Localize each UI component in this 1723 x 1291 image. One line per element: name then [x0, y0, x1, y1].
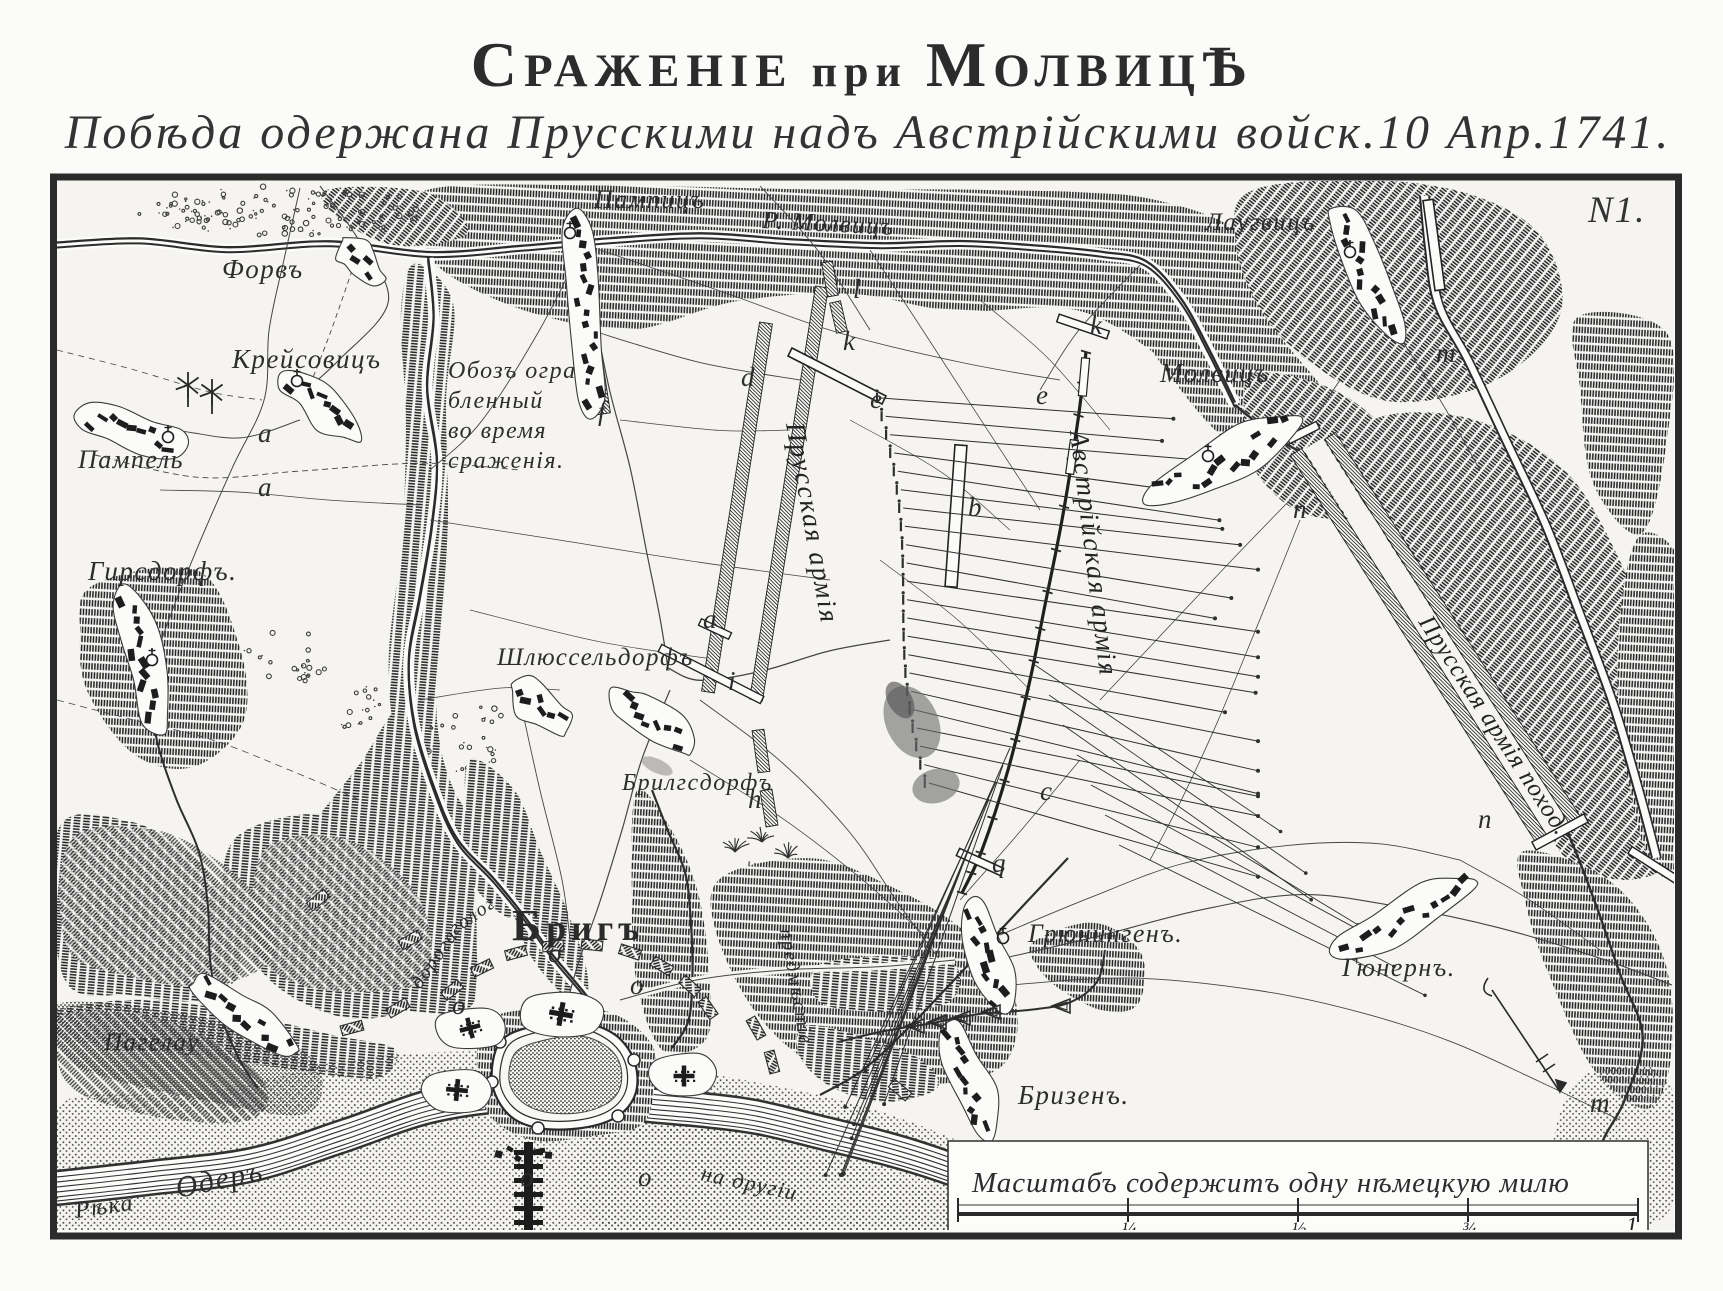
svg-text:Побѣда одержана Прусскими надъ: Побѣда одержана Прусскими надъ Австрійск… [64, 106, 1672, 159]
svg-text:n: n [1293, 494, 1307, 524]
svg-text:о: о [630, 970, 644, 1000]
svg-text:l: l [853, 274, 861, 304]
svg-text:Бригъ: Бригъ [512, 901, 644, 950]
svg-text:Шлюссельдорфъ: Шлюссельдорфъ [496, 644, 694, 671]
svg-text:о: о [452, 990, 466, 1020]
svg-text:Форвъ: Форвъ [222, 254, 304, 284]
svg-text:сраженія.: сраженія. [448, 448, 565, 474]
svg-text:e: e [870, 384, 882, 414]
svg-text:a: a [703, 604, 717, 634]
svg-text:Гирсдорфъ.: Гирсдорфъ. [87, 556, 237, 586]
svg-text:k: k [843, 326, 856, 356]
svg-text:Лаугвицъ: Лаугвицъ [1204, 209, 1316, 236]
svg-text:q: q [992, 848, 1006, 878]
svg-text:b: b [968, 492, 982, 522]
svg-text:о: о [548, 938, 562, 968]
svg-text:N1.: N1. [1587, 190, 1646, 231]
svg-text:h: h [748, 784, 762, 814]
svg-text:бленный: бленный [448, 388, 544, 414]
svg-text:e: e [1036, 380, 1048, 410]
svg-text:Грюнингенъ.: Грюнингенъ. [1027, 919, 1183, 948]
svg-text:m: m [1590, 1088, 1610, 1118]
svg-text:n: n [1478, 804, 1492, 834]
svg-text:d: d [741, 362, 755, 392]
svg-text:о: о [638, 1162, 652, 1192]
svg-text:а: а [258, 472, 272, 502]
svg-text:i: i [728, 666, 736, 696]
svg-text:m: m [1436, 338, 1456, 368]
svg-text:Крейсовицъ: Крейсовицъ [231, 344, 381, 374]
svg-text:c: c [1040, 776, 1052, 806]
svg-text:Гюнернъ.: Гюнернъ. [1341, 953, 1456, 982]
svg-text:Масштабъ содержитъ одну нѣмецк: Масштабъ содержитъ одну нѣмецкую милю [971, 1167, 1570, 1199]
svg-text:Молвицъ: Молвицъ [1159, 358, 1270, 388]
svg-text:Пагелау: Пагелау [103, 1029, 200, 1056]
svg-text:Бризенъ.: Бризенъ. [1017, 1080, 1130, 1110]
svg-text:о: о [520, 1162, 534, 1192]
svg-text:Пампель: Пампель [77, 445, 184, 474]
svg-text:во время: во время [448, 418, 547, 444]
svg-text:Обозъ огра: Обозъ огра [448, 358, 577, 384]
svg-text:а: а [258, 418, 272, 448]
svg-text:Пампицъ: Пампицъ [593, 185, 705, 214]
svg-text:k: k [1090, 310, 1103, 340]
